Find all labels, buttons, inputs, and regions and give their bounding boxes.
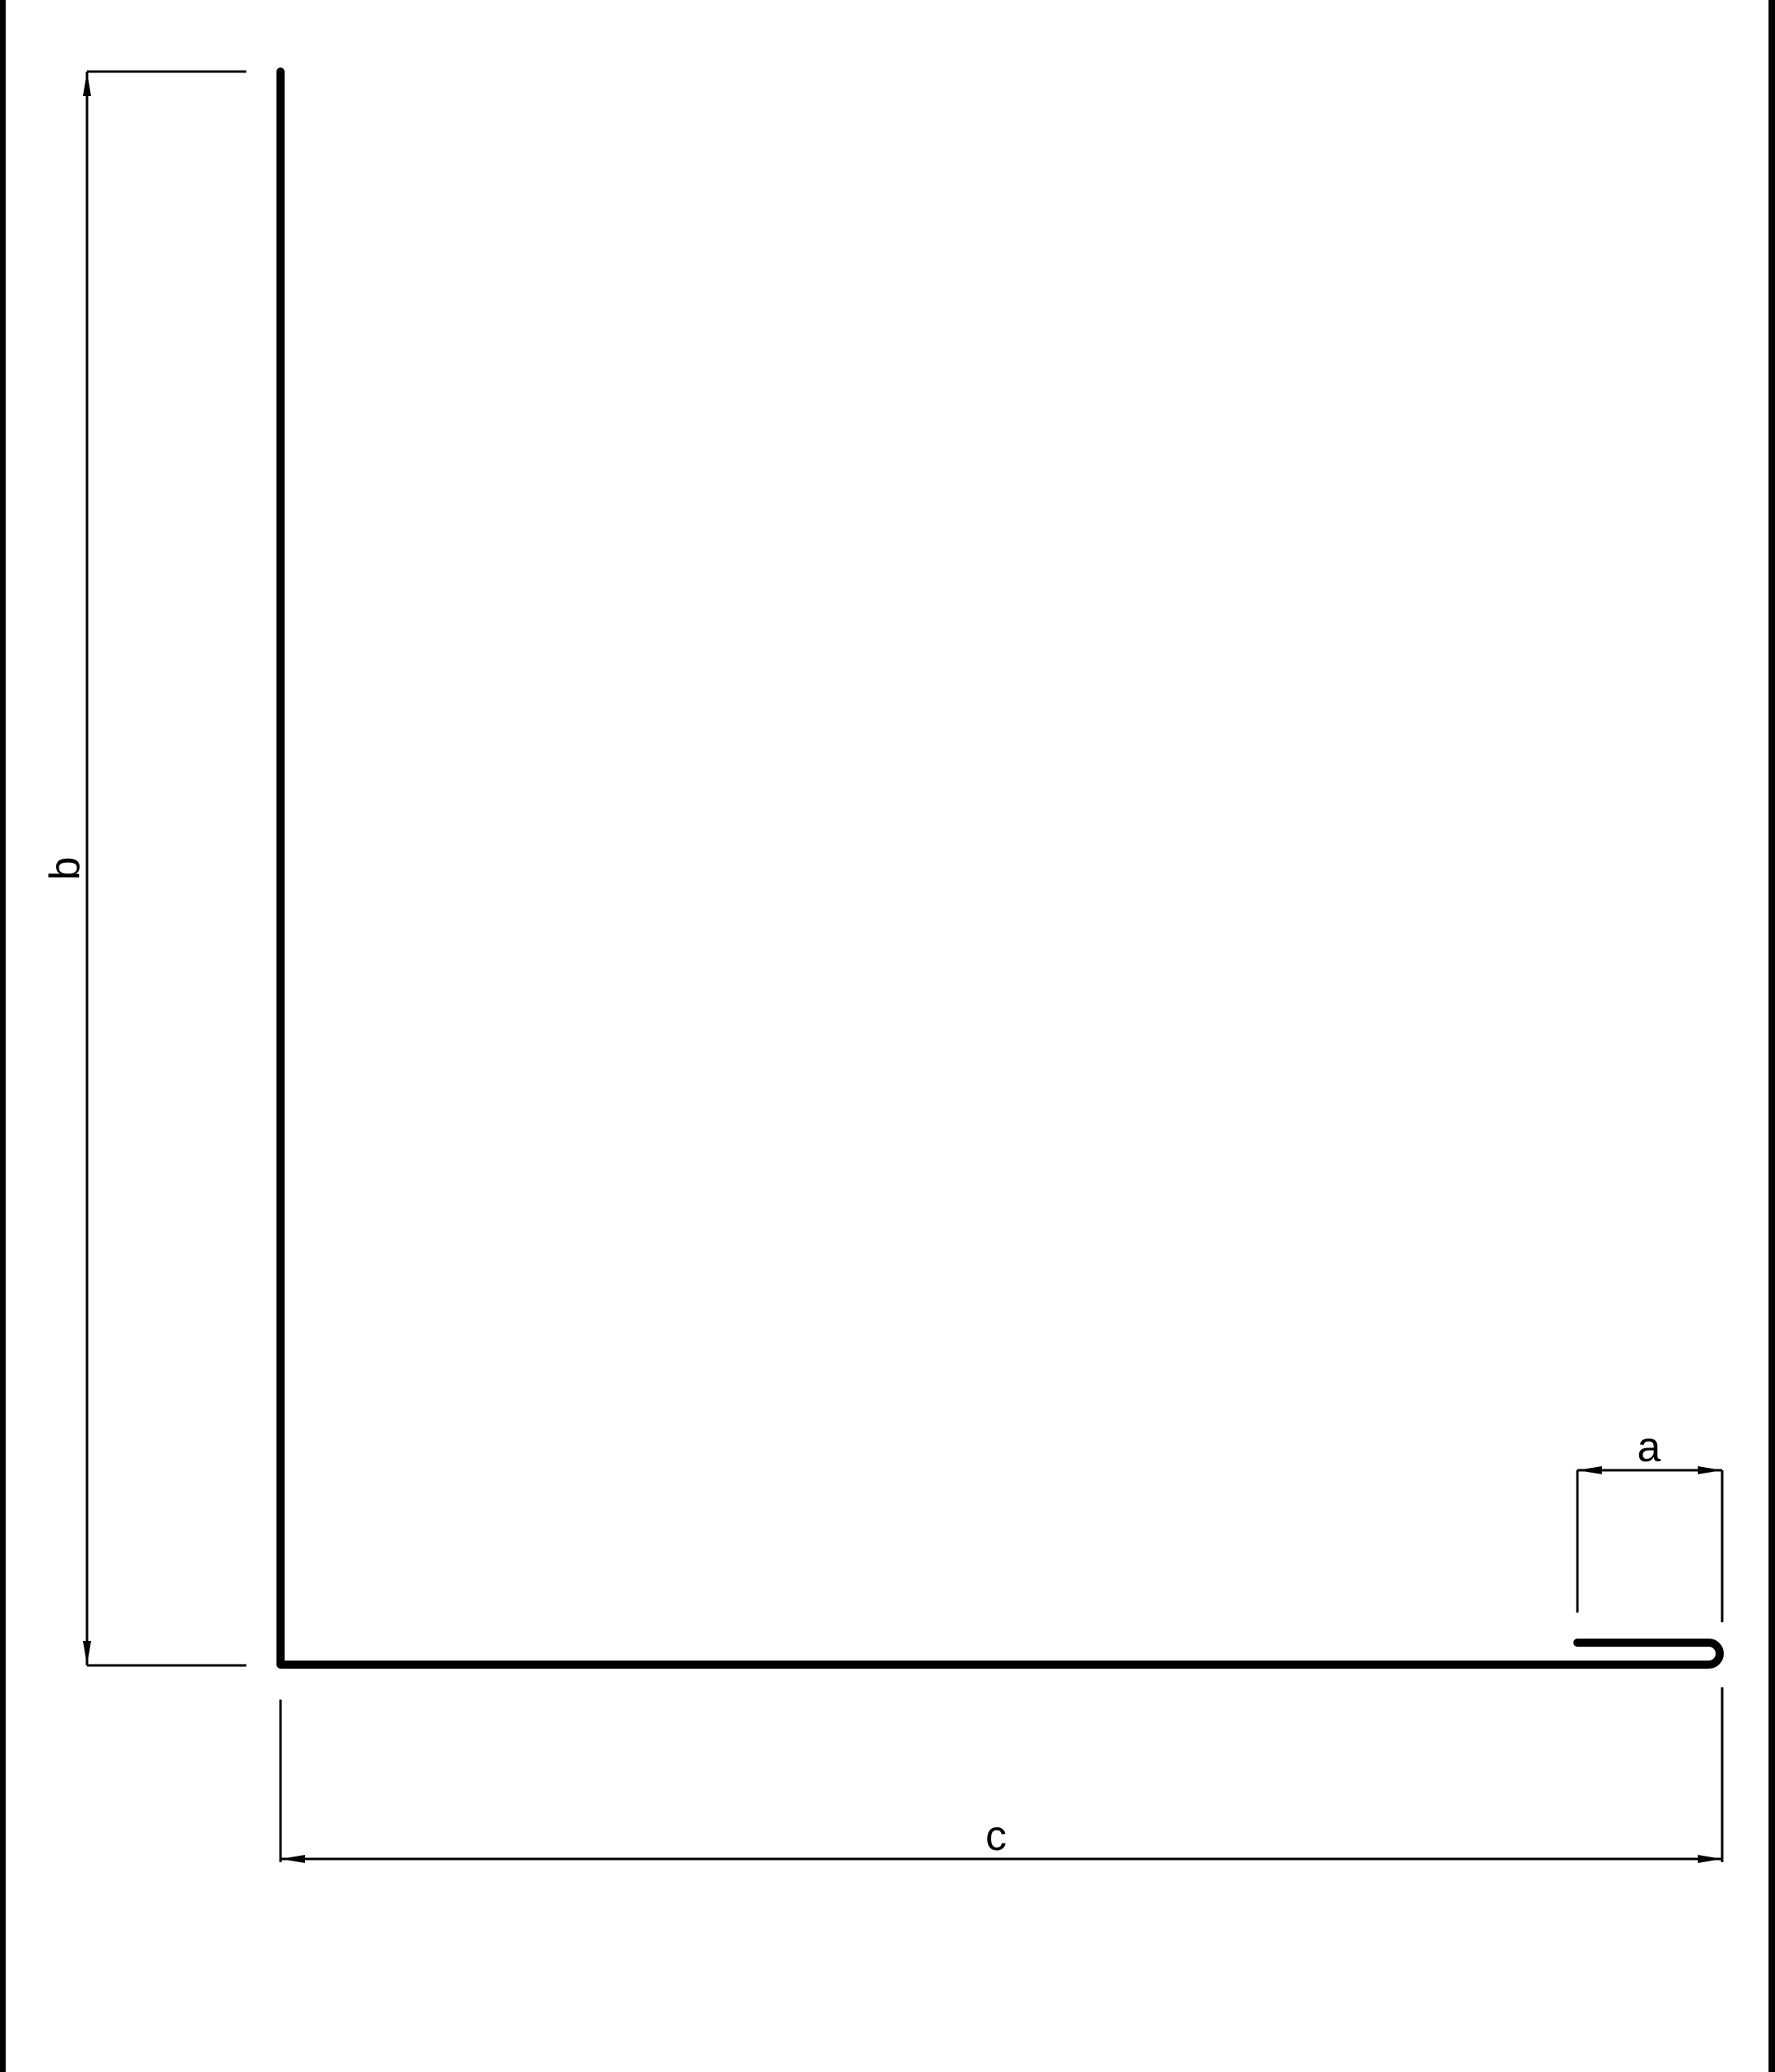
dimension-c-label: c bbox=[985, 1813, 1007, 1860]
dimension-c: c bbox=[281, 1687, 1722, 1863]
dimension-a: a bbox=[1577, 1424, 1722, 1622]
profile-drawing: b c a bbox=[0, 0, 1775, 2072]
dimension-b-label: b bbox=[41, 857, 89, 881]
left-edge-bar bbox=[0, 0, 6, 2072]
dimension-a-label: a bbox=[1638, 1424, 1661, 1471]
arrow-left-icon bbox=[1577, 1466, 1602, 1474]
arrow-right-icon bbox=[1698, 1855, 1722, 1863]
arrow-down-icon bbox=[83, 1641, 91, 1665]
arrow-left-icon bbox=[281, 1855, 305, 1863]
profile-outline bbox=[281, 72, 1720, 1665]
arrow-up-icon bbox=[83, 72, 91, 96]
arrow-right-icon bbox=[1698, 1466, 1722, 1474]
dimension-b: b bbox=[41, 72, 246, 1665]
right-edge-bar bbox=[1768, 0, 1775, 2072]
